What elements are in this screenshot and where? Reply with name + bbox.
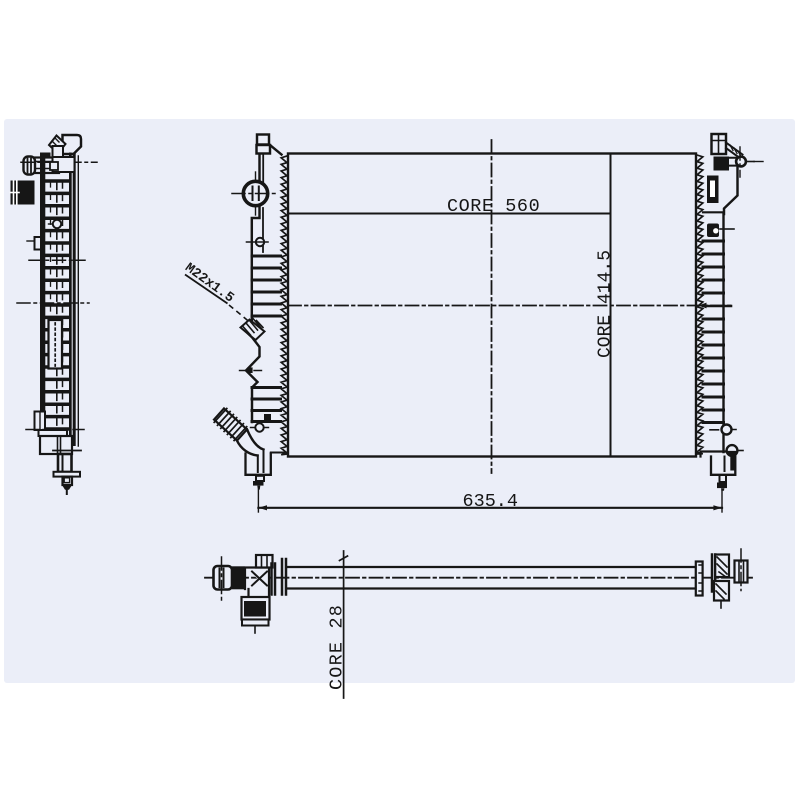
svg-text:CORE 560: CORE 560 (447, 196, 540, 217)
svg-text:CORE 414.5: CORE 414.5 (596, 250, 616, 358)
svg-text:CORE 28: CORE 28 (327, 604, 348, 690)
svg-text:635.4: 635.4 (463, 491, 519, 512)
